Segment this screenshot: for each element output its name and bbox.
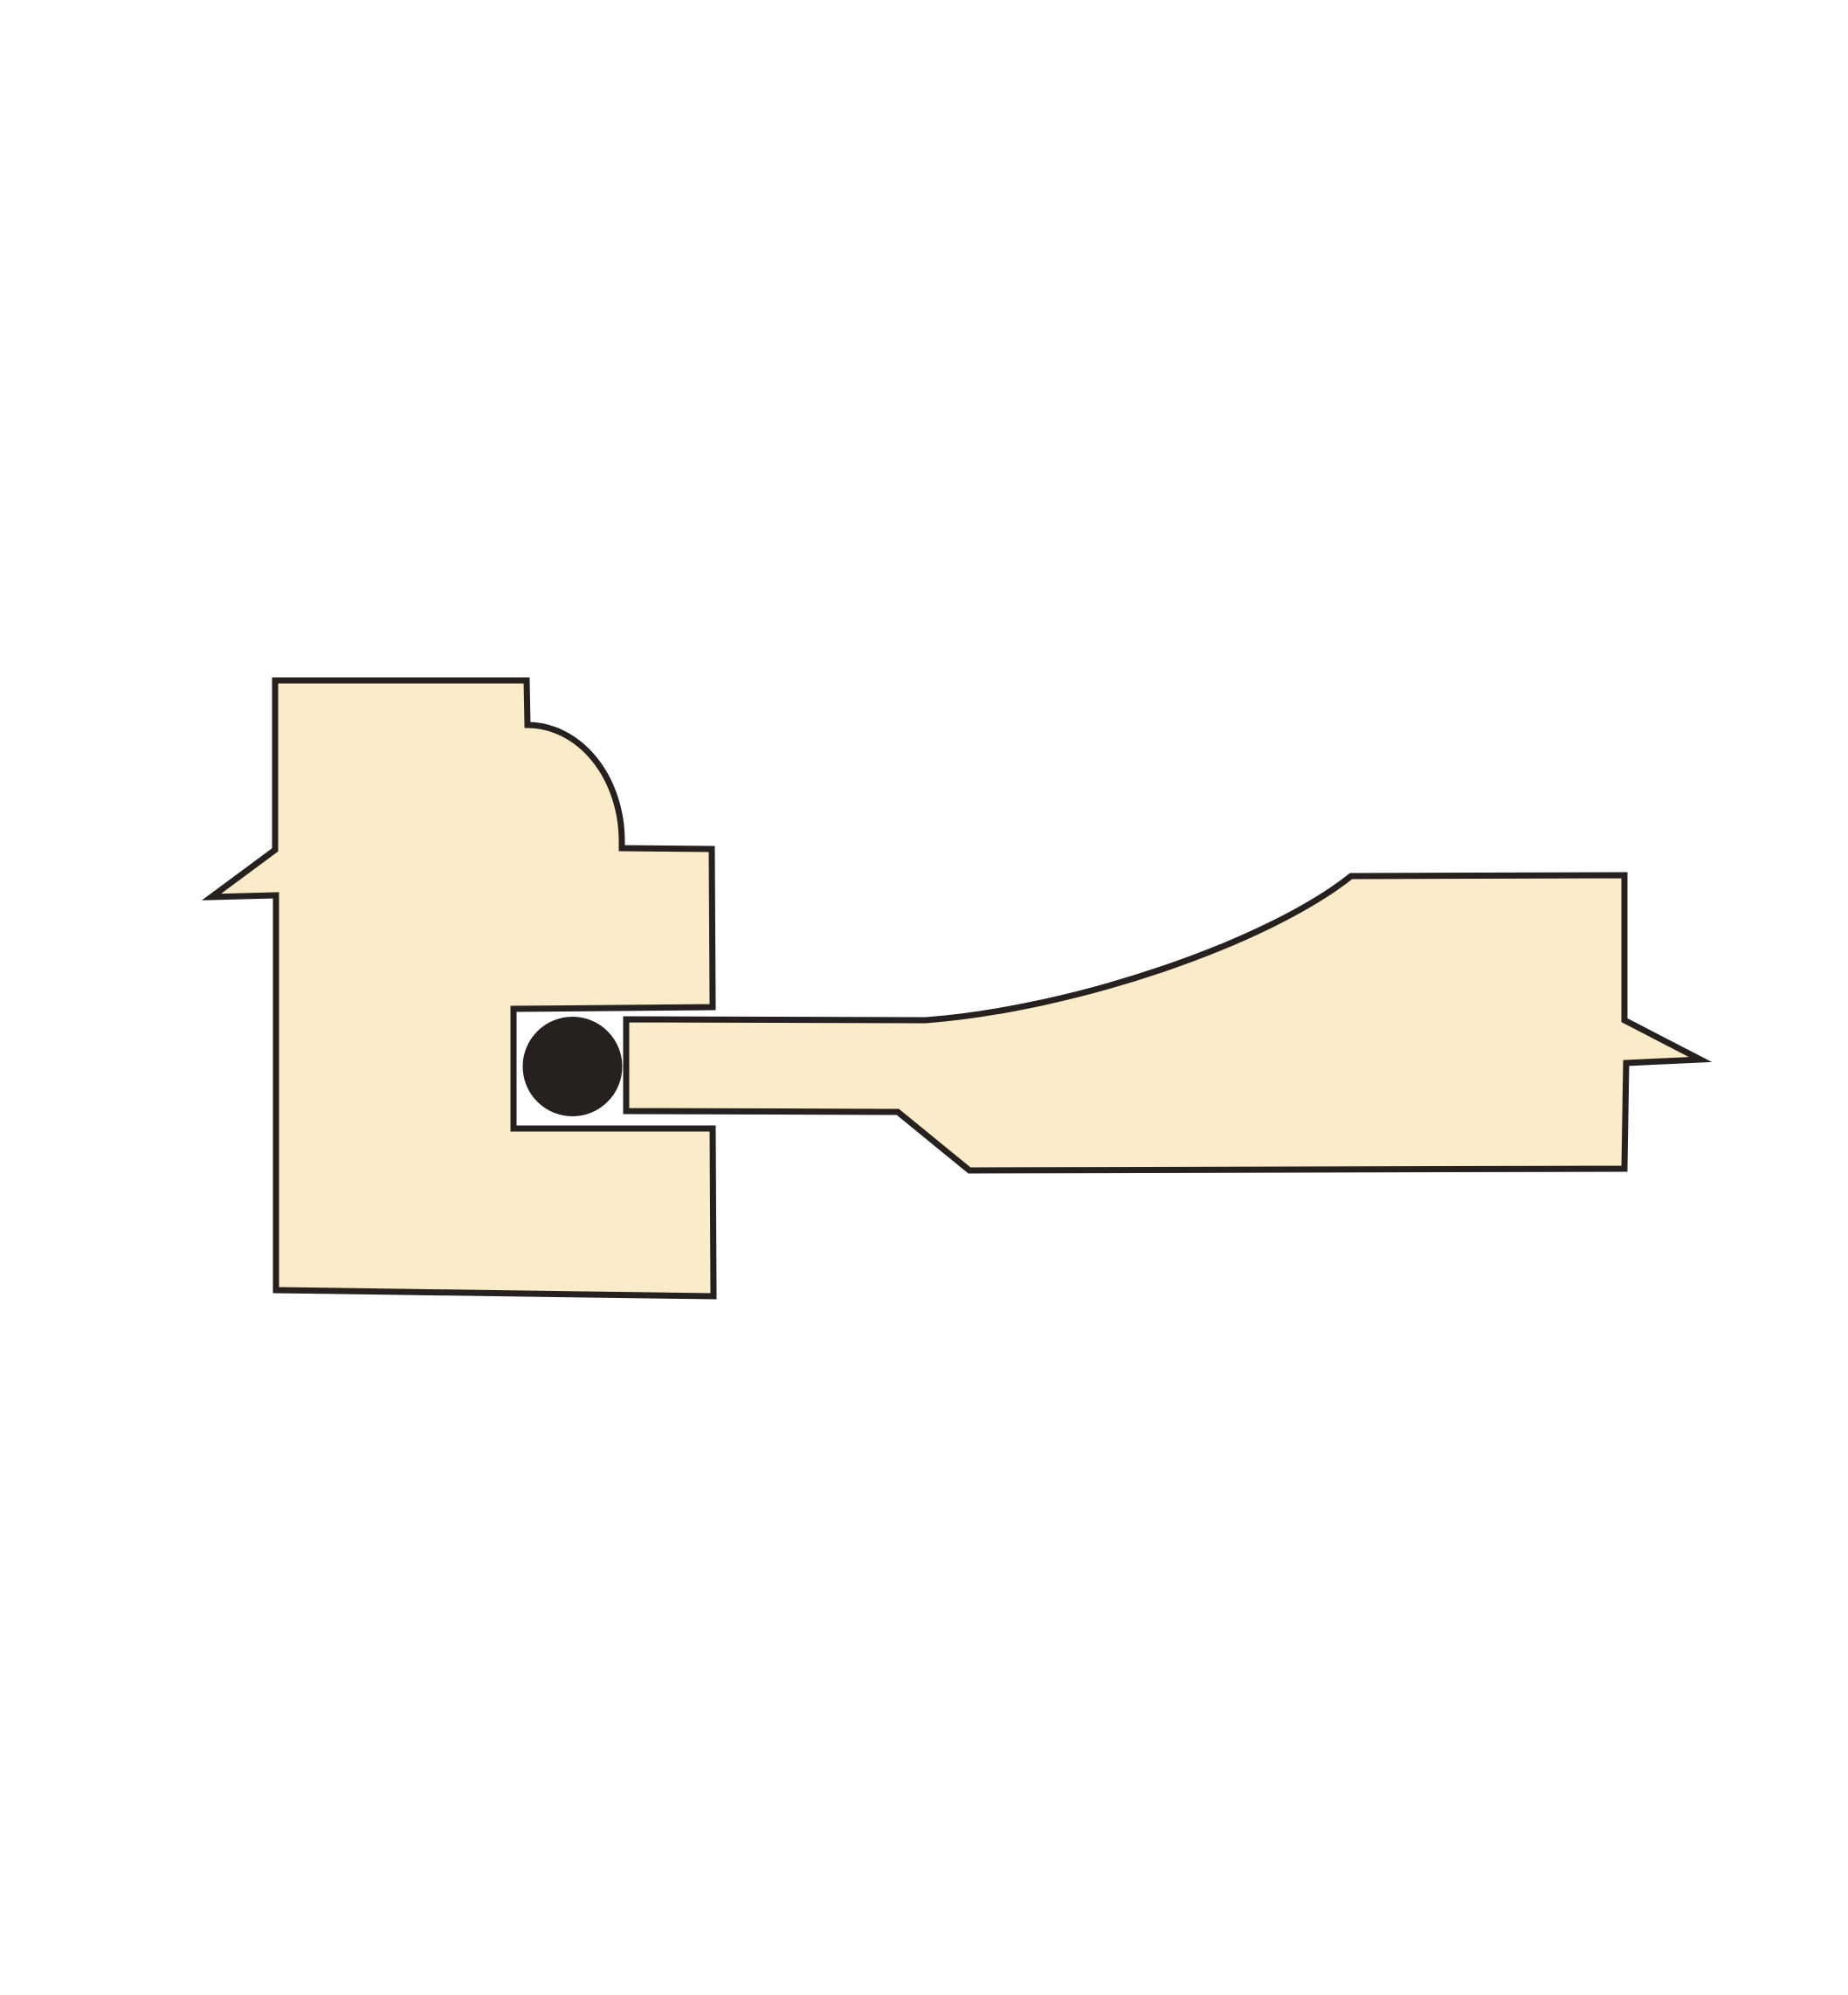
frame-stile-profile (211, 680, 714, 1296)
space-ball (524, 1018, 622, 1115)
raised-panel-profile (626, 875, 1700, 1170)
diagram-canvas (0, 0, 1848, 1995)
joint-cross-section-diagram (0, 0, 1848, 1995)
